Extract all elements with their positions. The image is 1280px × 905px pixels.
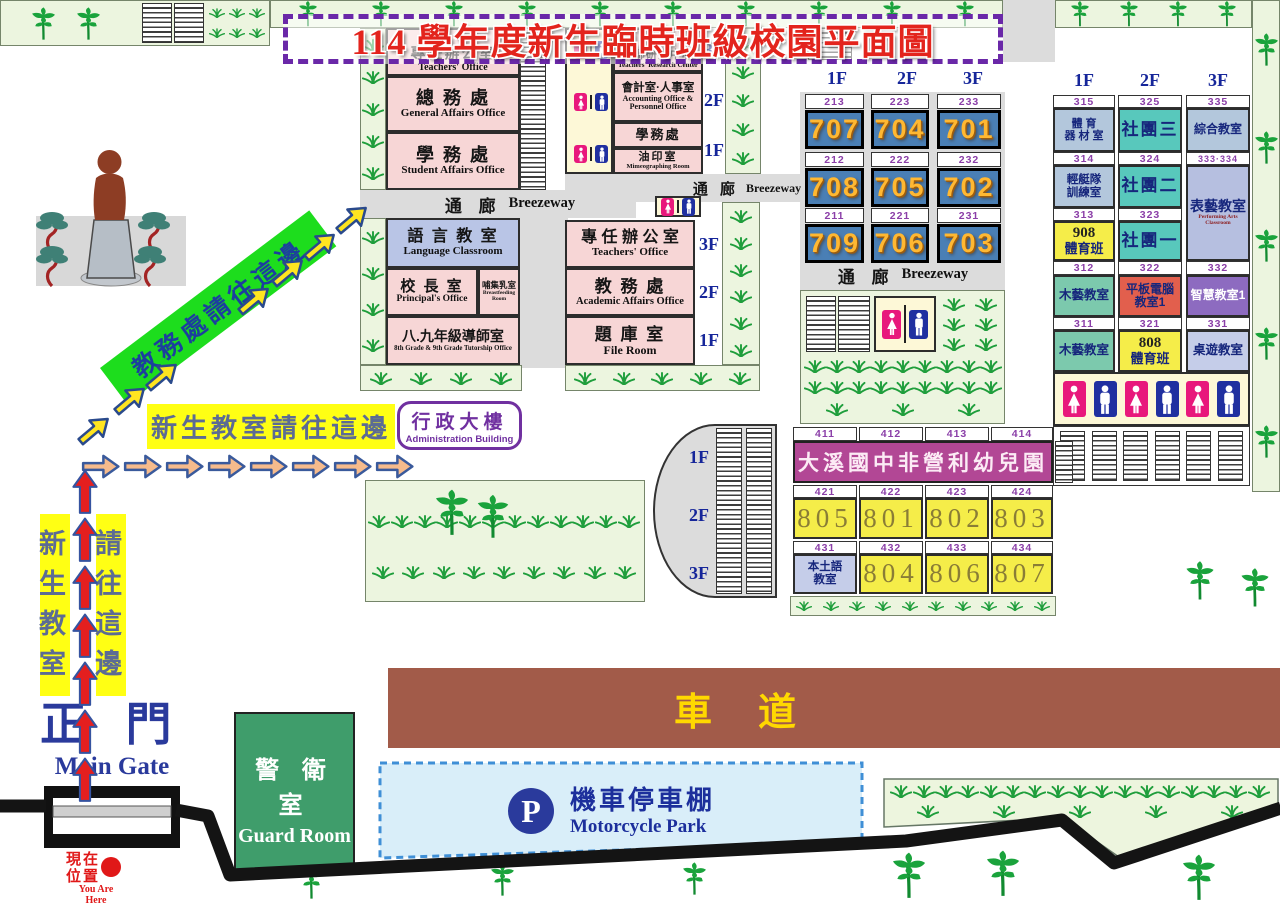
vertical-sign-freshman: 新生教室	[40, 514, 70, 696]
label-en: You Are Here	[58, 885, 134, 905]
label-zh: 現在 位置	[66, 851, 100, 886]
label-en: Administration Building	[406, 434, 514, 445]
main-gate-label: 正 門 Main Gate	[40, 688, 184, 788]
parking-icon: P	[508, 788, 554, 834]
label-zh: 正 門	[40, 688, 184, 754]
arrow-row-east	[80, 452, 420, 481]
gate-structure	[44, 784, 180, 858]
label-en: Main Gate	[40, 754, 184, 780]
label-zh: 機車停車棚	[570, 780, 820, 817]
label-en: Motorcycle Park	[570, 817, 820, 837]
vertical-sign-this-way: 請往這邊	[96, 514, 126, 696]
here-dot-icon	[101, 857, 121, 877]
parking-icon-letter: P	[521, 793, 541, 830]
map-title: 114 學年度新生臨時班級校園平面圖	[283, 14, 1003, 64]
campus-map: 專任辦公室 Teachers' Office 總 務 處 General Aff…	[0, 0, 1280, 905]
you-are-here: 現在 位置 You Are Here	[58, 851, 138, 905]
label-zh: 行政大樓	[411, 407, 507, 434]
admin-building-sign: 行政大樓 Administration Building	[397, 401, 522, 450]
motorcycle-park-label: 機車停車棚 Motorcycle Park	[570, 780, 820, 840]
arrow-column-north	[71, 468, 99, 808]
banner-to-freshman-classrooms: 新生教室請往這邊	[147, 404, 395, 449]
